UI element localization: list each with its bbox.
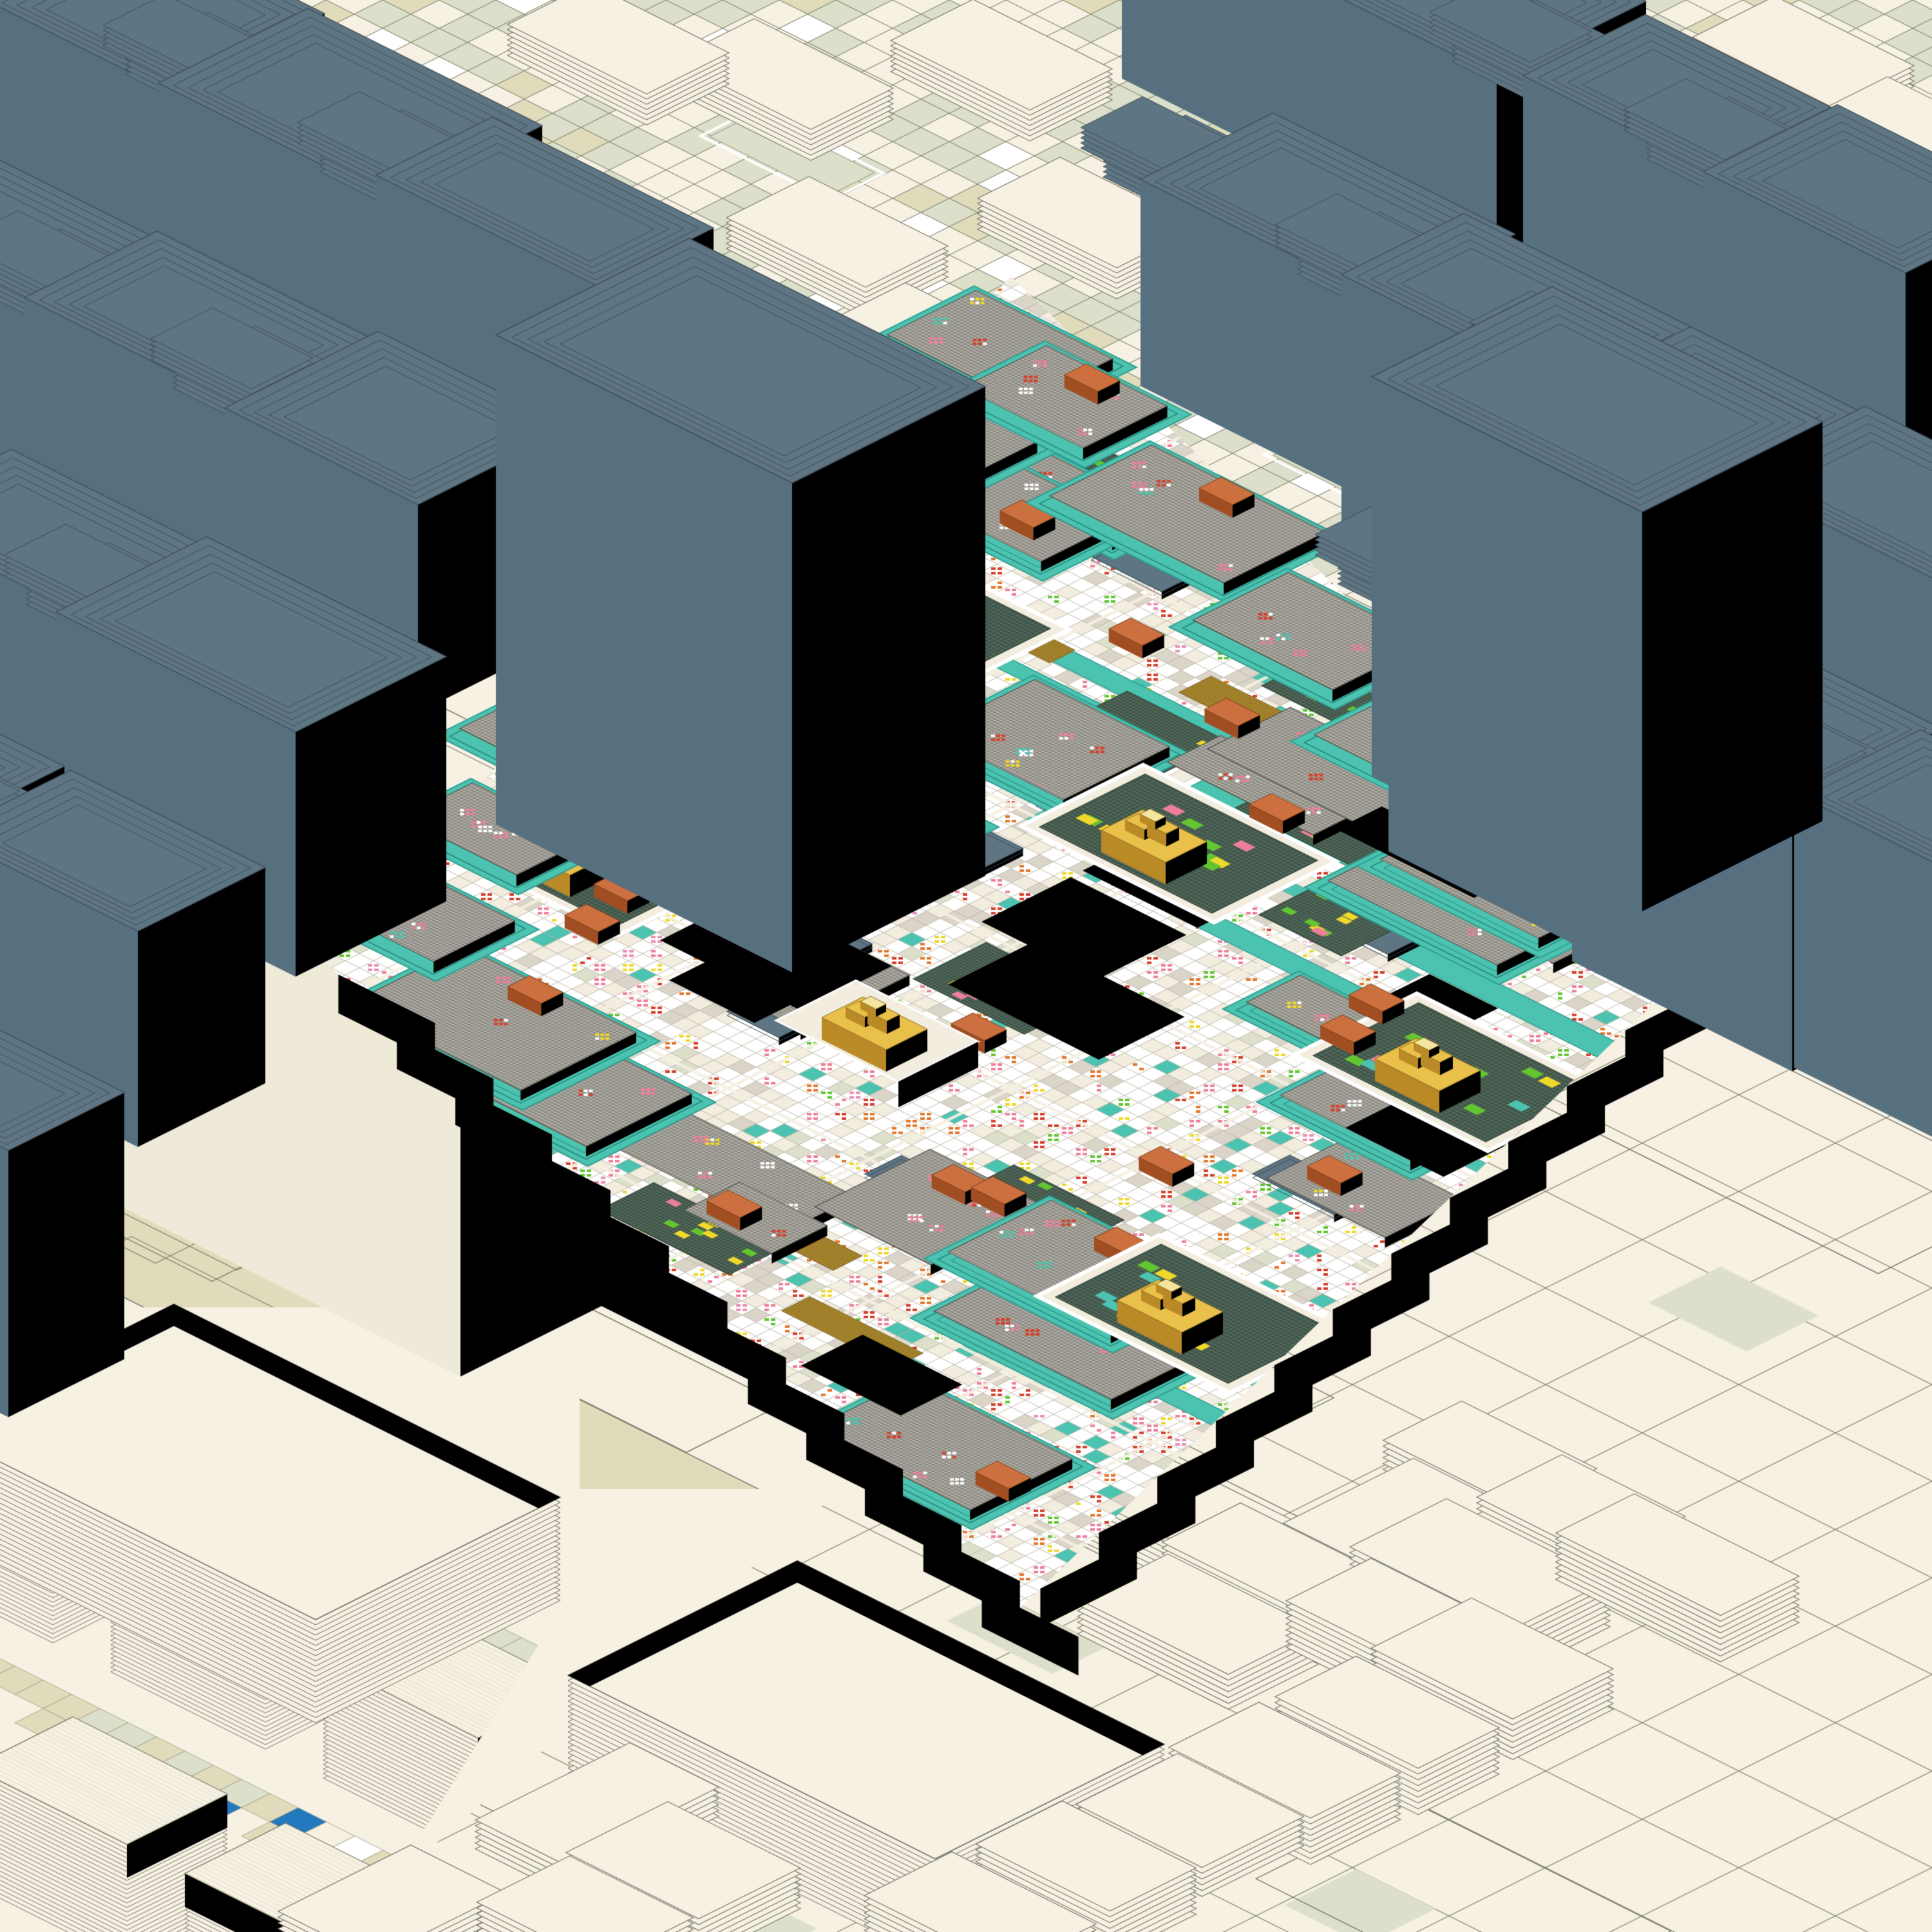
city-canvas	[0, 0, 1932, 1932]
scene-root	[0, 0, 1932, 1932]
